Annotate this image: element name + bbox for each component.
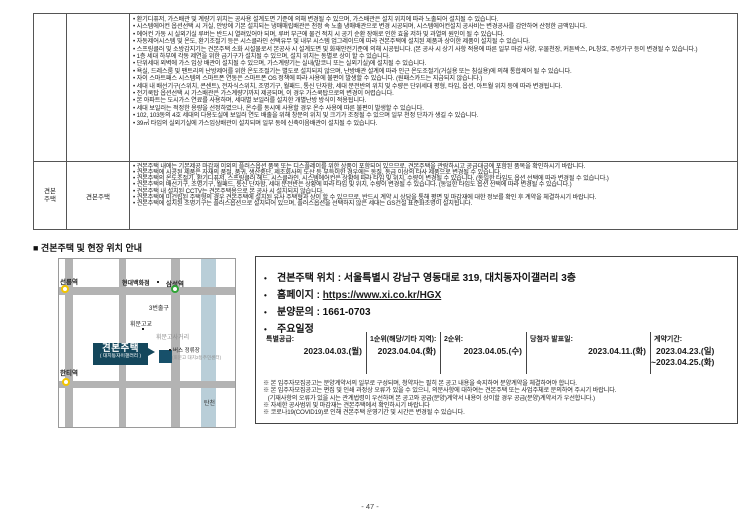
info-line-location: • 견본주택 위치 : 서울특별시 강남구 영동대로 319, 대치동자이갤러리… (264, 269, 576, 286)
document-page: 환기디퓨저, 가스배관 및 계량기 위치는 공사용 설계도면 기준에 의해 변경… (0, 0, 740, 523)
note-bullet: 자이 스마트패스 시스템의 스마트폰 연동은 스마트폰 OS 정책에 따라 사용… (133, 75, 733, 82)
notes-table: 환기디퓨저, 가스배관 및 계량기 위치는 공사용 설계도면 기준에 의해 변경… (33, 13, 738, 230)
note-bullet: 견본주택에 설치된 조명기구는 플러스옵션으로 설치되어 있으며, 플러스옵션을… (133, 201, 733, 207)
schedule-column: 계약기간: 2023.04.23.(일) ~2023.04.25.(화) (650, 332, 718, 374)
model-house-site-marker (159, 350, 172, 363)
model-house-info-box: • 견본주택 위치 : 서울특별시 강남구 영동대로 319, 대치동자이갤러리… (255, 256, 738, 424)
row-sub-label-cell: 견본주택 (67, 162, 130, 229)
location-map: 선릉역 현대백화점 삼성역 3번출구 휘문고교 휘문고사거리 견본주택 ( 대치… (58, 258, 236, 428)
homepage-label: 홈페이지 : (277, 286, 320, 301)
info-line-phone: • 분양문의 : 1661-0703 (264, 303, 576, 320)
note-bullet: 자동제어시스템 및 온도, 환기조절기 등은 시스클라인 선택유무 및 내부 시… (133, 38, 733, 45)
hyundai-dept-dot-icon (157, 281, 159, 283)
note-bullet: 본 아파트는 도시가스 연료를 사용하며, 세대별 보일러를 설치한 개별난방 … (133, 97, 733, 104)
map-label-hanti-station: 한티역 (60, 367, 78, 377)
model-house-callout-title: 견본주택 (93, 343, 148, 354)
map-label-exit3: 3번출구 (149, 303, 169, 312)
footnotes: ※ 본 입주자모집공고는 분양계약서의 일부로 구성되며, 청약자는 필히 본 … (263, 380, 616, 416)
schedule-column-label: 2순위: (441, 332, 526, 346)
page-number: - 47 - (0, 502, 740, 511)
map-label-bus-stop-sub: (휘문고 대치2동주민센터) (172, 355, 221, 361)
schedule-column: 1순위(해당/기타 지역): 2023.04.04.(화) (366, 332, 440, 374)
schedule-column-label: 당첨자 발표일: (527, 332, 650, 346)
note-bullet: 스프링클러 및 소방감지기는 견본주택 소화 시설물로서 본공사 시 설계도면 … (133, 46, 733, 53)
row-group-label-cell: 견본주택 (34, 162, 67, 229)
map-label-whimoon-crossing: 휘문고사거리 (156, 332, 189, 341)
schedule-column-label: 특별공급: (263, 332, 366, 346)
notes-cell: 환기디퓨저, 가스배관 및 계량기 위치는 공사용 설계도면 기준에 의해 변경… (130, 14, 737, 161)
schedule-date: 2023.04.05.(수) (441, 346, 526, 357)
table-row: 환기디퓨저, 가스배관 및 계량기 위치는 공사용 설계도면 기준에 의해 변경… (34, 14, 737, 161)
bus-stop-dot-icon (169, 349, 171, 351)
bullet-icon: • (264, 291, 277, 300)
schedule-column-label: 1순위(해당/기타 지역): (367, 332, 440, 346)
map-label-tancheon: 탄천 (204, 398, 215, 407)
note-bullet: 세대 내 배선기구(스위치, 콘센트), 전자식스위치, 조명기구, 월패드, … (133, 83, 733, 90)
schedule-date: 2023.04.11.(화) (527, 346, 650, 357)
schedule-column: 2순위: 2023.04.05.(수) (440, 332, 526, 374)
bullet-icon: • (264, 274, 277, 283)
row-sub-label-cell (67, 14, 130, 161)
map-road-horizontal-1 (59, 287, 235, 295)
schedule-date: 2023.04.04.(화) (367, 346, 440, 357)
notes-cell: 견본주택 내에는 기본제공 마감재 이외의 플러스옵션 품목 또는 디스플레이를… (130, 162, 737, 229)
seolleung-station-icon (61, 285, 69, 293)
note-bullet: 102, 103동의 4호 세대의 다용도실에 보일러 연도 배출을 위해 창문… (133, 112, 733, 119)
schedule-column-label: 계약기간: (651, 332, 718, 346)
row-sub-label: 견본주택 (86, 191, 110, 201)
schedule-date: 2023.04.03.(월) (263, 346, 366, 357)
bullet-icon: • (264, 308, 277, 317)
table-row: 견본주택 견본주택 견본주택 내에는 기본제공 마감재 이외의 플러스옵션 품목… (34, 161, 737, 229)
info-line-homepage: • 홈페이지 : https://www.xi.co.kr/HGX (264, 286, 576, 303)
schedule-column: 당첨자 발표일: 2023.04.11.(화) (526, 332, 650, 374)
row-group-label-cell (34, 14, 67, 161)
whimoon-school-dot-icon (142, 328, 144, 330)
map-label-bus-stop: 버스 정류장 (173, 346, 200, 354)
model-house-callout-subtitle: ( 대치동자이갤러리 ) (93, 354, 148, 359)
note-bullet: 39㎡ 타입의 실외기실에 가스입상배관이 설치되며 일부 동에 신축이음배관이… (133, 120, 733, 127)
sales-inquiry-phone: 분양문의 : 1661-0703 (277, 303, 371, 318)
schedule-table: 특별공급: 2023.04.03.(월) 1순위(해당/기타 지역): 2023… (263, 332, 736, 374)
note-bullet: 시스템에어컨 옵션선택 시 거실, 안방에 기본 설치되는 냉매매립배관은 천정… (133, 23, 733, 30)
schedule-date: 2023.04.23.(일) (651, 346, 718, 357)
model-house-callout: 견본주택 ( 대치동자이갤러리 ) (93, 343, 148, 365)
schedule-date: ~2023.04.25.(화) (651, 357, 718, 368)
map-label-hyundai-dept: 현대백화점 (122, 278, 150, 287)
schedule-column: 특별공급: 2023.04.03.(월) (263, 332, 366, 374)
row-group-label: 견본주택 (43, 188, 58, 203)
hanti-station-icon (62, 378, 70, 386)
footnote-line: ※ 본 입주자모집공고는 편집 및 인쇄 과정상 오류가 있을 수 있으니, 의… (263, 387, 616, 394)
samseong-station-icon (171, 285, 179, 293)
note-bullet: 단위세대 외벽에 가스 입상 배관이 설치될 수 있으며, 가스계량기는 실내(… (133, 60, 733, 67)
footnote-line: (기재사항의 오류가 있을 시는 관계법령이 우선하며 본 공고와 공급(분양)… (263, 395, 616, 402)
footnote-line: ※ 코로나19(COVID19)로 인해 견본주택 운영기간 및 시간은 변경될… (263, 409, 616, 416)
map-label-whimoon-school: 휘문고교 (130, 319, 152, 328)
model-house-location: 견본주택 위치 : 서울특별시 강남구 영동대로 319, 대치동자이갤러리 3… (277, 269, 576, 284)
info-list: • 견본주택 위치 : 서울특별시 강남구 영동대로 319, 대치동자이갤러리… (264, 269, 576, 337)
section-heading: ■ 견본주택 및 현장 위치 안내 (33, 241, 142, 254)
callout-pointer-icon (148, 348, 155, 356)
homepage-link[interactable]: https://www.xi.co.kr/HGX (323, 290, 442, 301)
map-road-horizontal-2 (59, 381, 235, 388)
